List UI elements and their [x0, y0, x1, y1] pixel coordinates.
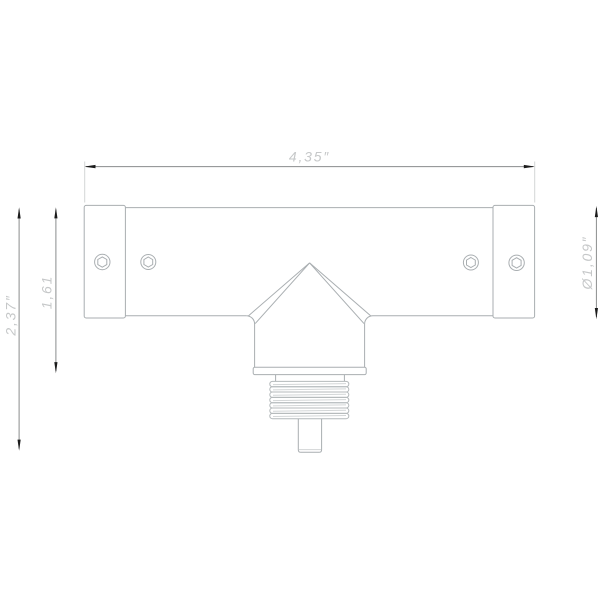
svg-text:2,37″: 2,37″: [3, 294, 19, 336]
svg-text:Ø1,09″: Ø1,09″: [579, 236, 595, 291]
svg-text:4,35″: 4,35″: [289, 149, 330, 165]
svg-text:1,61: 1,61: [39, 275, 55, 309]
